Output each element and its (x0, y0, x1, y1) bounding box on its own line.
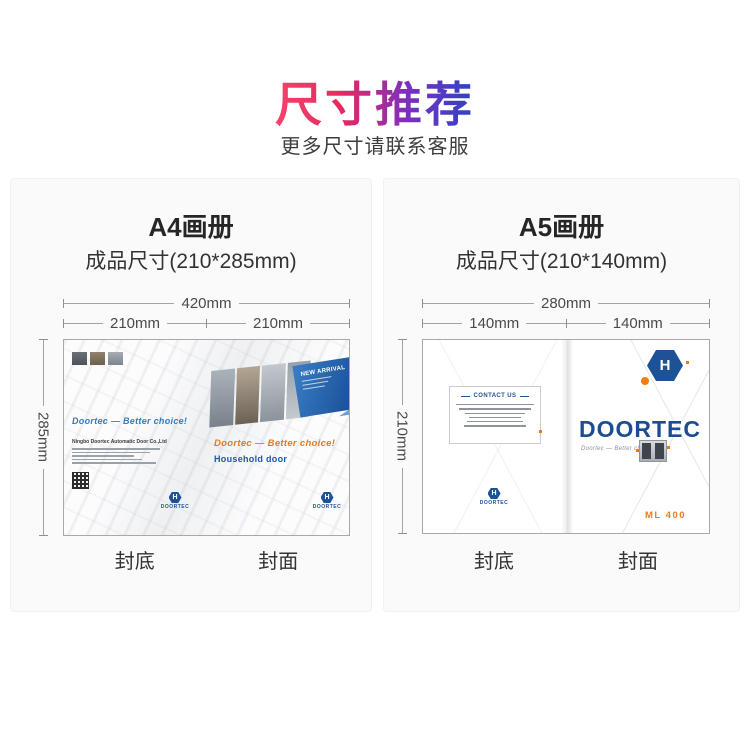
dim-line (239, 303, 349, 304)
dim-row-split: 210mm 210mm (63, 313, 350, 333)
dim-line (43, 340, 44, 406)
panel-a4-size-label: 成品尺寸(210*285mm) (11, 245, 371, 275)
dim-label-total: 420mm (174, 296, 238, 311)
text-line (459, 408, 531, 409)
door-photo (235, 366, 260, 425)
contact-title-row: CONTACT US (450, 393, 540, 399)
dim-row-split: 140mm 140mm (422, 313, 710, 333)
panel-a4-cover-labels: 封底 封面 (63, 545, 350, 574)
orange-dot-icon (641, 377, 649, 385)
dim-line (402, 340, 403, 405)
back-cover-tagline: Doortec — Better choice! (72, 416, 187, 426)
dim-label-left: 210mm (103, 316, 167, 331)
text-line (72, 448, 160, 450)
door-photo (209, 369, 234, 428)
dim-label-height: 210mm (395, 405, 410, 467)
door-photo-thumb (108, 352, 123, 365)
text-line (72, 455, 134, 457)
hexagon-logo-icon: H (488, 488, 501, 499)
dim-line (43, 469, 44, 535)
panel-a4-height-dimension: 285mm (33, 339, 53, 536)
dim-tick (349, 319, 350, 328)
contact-info-lines (72, 448, 160, 464)
orange-square-icon (686, 361, 689, 364)
dim-line (526, 323, 565, 324)
qr-code-icon (72, 472, 89, 489)
dim-tick (709, 299, 710, 308)
back-cover-label: 封底 (63, 545, 207, 574)
doortec-logo: H DOORTEC (158, 492, 192, 510)
a5-brochure-spread-image: CONTACT US H DOORTEC H DOORTEC Doortec —… (422, 339, 710, 534)
hexagon-logo-icon: H (321, 492, 334, 503)
banner-text-line (303, 385, 325, 390)
dim-line (598, 303, 709, 304)
panel-a5-title: A5画册 (384, 207, 739, 244)
panel-a4-dimension-rows: 420mm 210mm 210mm (63, 293, 350, 333)
panel-a4: A4画册 成品尺寸(210*285mm) 420mm 210mm 210mm 2… (10, 178, 372, 612)
door-operator-photo (639, 440, 667, 462)
dim-label-right: 210mm (246, 316, 310, 331)
orange-accent-dot (539, 430, 542, 433)
dim-line (64, 323, 103, 324)
dim-tick (349, 299, 350, 308)
door-photo-thumb (72, 352, 87, 365)
dim-label-total: 280mm (534, 296, 598, 311)
operator-end-cap (655, 443, 664, 459)
photo-thumbnails (72, 352, 123, 365)
front-cover-label: 封面 (566, 545, 710, 574)
panel-a5-height-dimension: 210mm (392, 339, 412, 534)
text-line (456, 404, 534, 405)
contact-us-box: CONTACT US (449, 386, 541, 444)
logo-text: DOORTEC (480, 500, 509, 506)
hexagon-logo-icon: H (647, 350, 683, 381)
panel-a5-size-label: 成品尺寸(210*140mm) (384, 245, 739, 275)
text-line (467, 421, 523, 422)
contact-title: CONTACT US (474, 393, 517, 399)
dim-line (207, 323, 246, 324)
dash-line (520, 396, 529, 397)
dim-row-total: 280mm (422, 293, 710, 313)
dim-tick (398, 533, 407, 534)
text-line (72, 452, 150, 454)
dim-line (423, 303, 534, 304)
text-line (469, 417, 521, 418)
a4-brochure-spread-image: Doortec — Better choice! Ningbo Doortec … (63, 339, 350, 536)
door-photo-thumb (90, 352, 105, 365)
dim-line (310, 323, 349, 324)
panel-a5-dimension-rows: 280mm 140mm 140mm (422, 293, 710, 333)
door-photo (260, 363, 285, 422)
spread-fold-shadow (561, 340, 573, 533)
dash-line (461, 396, 470, 397)
page-title-text: 尺寸推荐 (275, 66, 475, 135)
back-cover-label: 封底 (422, 545, 566, 574)
page-subtitle: 更多尺寸请联系客服 (0, 130, 750, 159)
operator-end-cap (642, 443, 651, 459)
dim-label-height: 285mm (36, 406, 51, 468)
panel-a5-cover-labels: 封底 封面 (422, 545, 710, 574)
text-line (465, 413, 525, 414)
dim-row-total: 420mm (63, 293, 350, 313)
hexagon-logo-icon: H (169, 492, 182, 503)
dim-line (64, 303, 174, 304)
company-name: Ningbo Doortec Automatic Door Co.,Ltd (72, 439, 167, 445)
text-line (72, 462, 156, 464)
dim-line (167, 323, 206, 324)
doortec-logo: H DOORTEC (310, 492, 344, 510)
dim-tick (39, 535, 48, 536)
new-arrival-banner: NEW ARRIVAL (292, 356, 350, 417)
dim-line (423, 323, 462, 324)
dim-tick (709, 319, 710, 328)
logo-text: DOORTEC (313, 504, 342, 510)
doortec-brand-text: DOORTEC (579, 416, 709, 443)
contact-info-lines (450, 404, 540, 427)
dim-label-right: 140mm (606, 316, 670, 331)
front-cover-tagline: Doortec — Better choice! (214, 438, 335, 449)
model-number: ML 400 (645, 510, 686, 521)
panel-a4-title: A4画册 (11, 207, 371, 244)
panel-a5: A5画册 成品尺寸(210*140mm) 280mm 140mm 140mm 2… (383, 178, 740, 612)
logo-text: DOORTEC (161, 504, 190, 510)
dim-line (670, 323, 709, 324)
dim-line (567, 323, 606, 324)
page-title: 尺寸推荐 (0, 66, 750, 135)
doortec-logo: H DOORTEC (477, 488, 511, 506)
dim-label-left: 140mm (462, 316, 526, 331)
front-cover-label: 封面 (207, 545, 351, 574)
dim-line (402, 468, 403, 533)
text-line (72, 459, 142, 461)
text-line (464, 425, 526, 426)
front-cover-product-line: Household door (214, 454, 287, 464)
